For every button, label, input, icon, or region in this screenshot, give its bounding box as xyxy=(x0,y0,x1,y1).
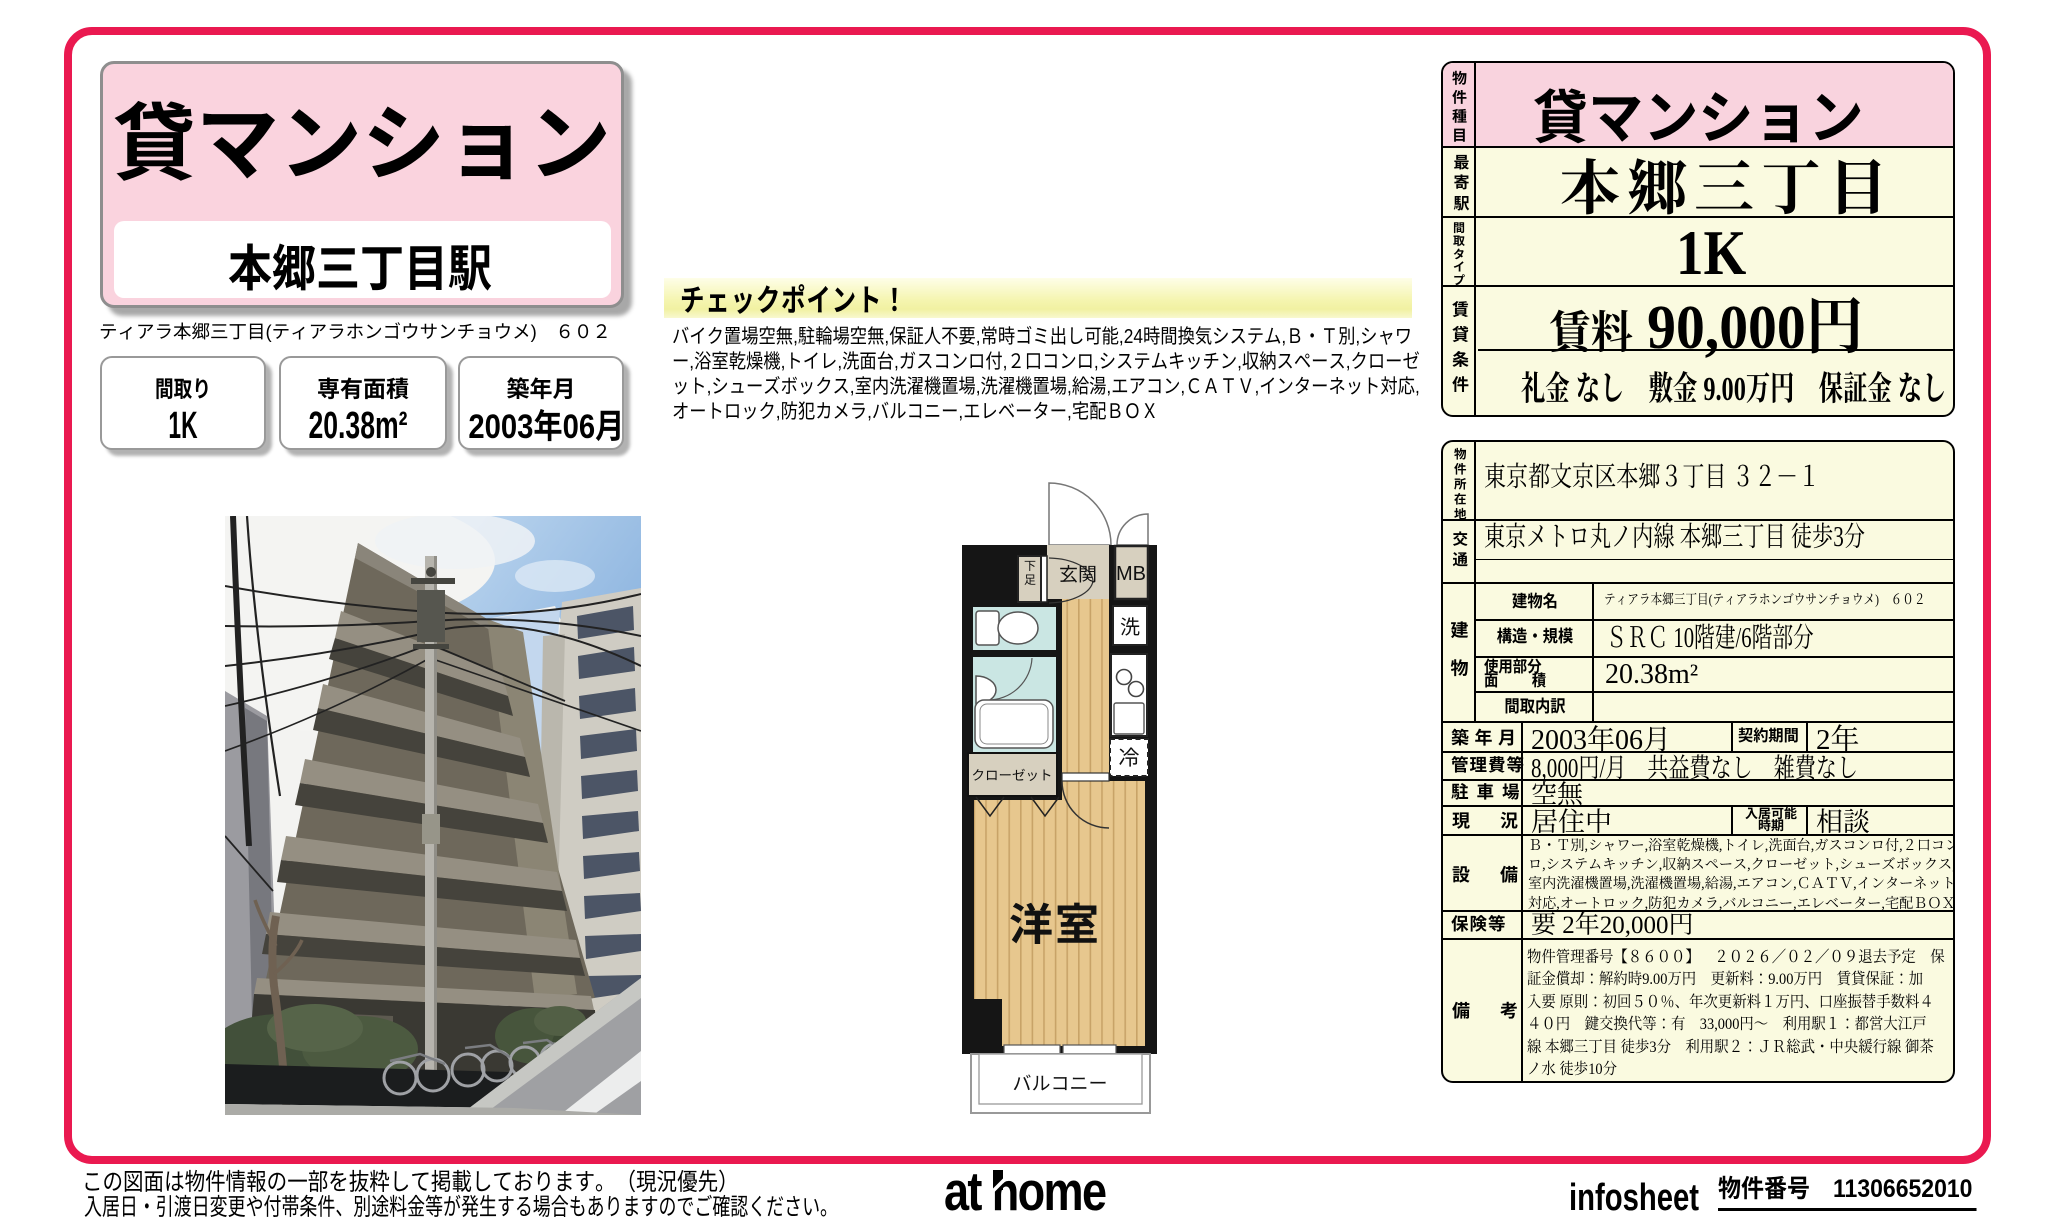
svg-text:玄関: 玄関 xyxy=(1059,565,1097,586)
svg-text:冷: 冷 xyxy=(1119,747,1140,770)
svg-text:足: 足 xyxy=(1024,573,1036,587)
svg-text:下: 下 xyxy=(1024,559,1036,573)
svg-text:洗: 洗 xyxy=(1120,617,1140,639)
svg-text:MB: MB xyxy=(1116,563,1146,585)
svg-text:クローゼット: クローゼット xyxy=(972,768,1053,783)
svg-text:洋室: 洋室 xyxy=(1009,901,1101,950)
svg-text:at home: at home xyxy=(944,1167,1106,1217)
svg-text:バルコニー: バルコニー xyxy=(1012,1074,1107,1095)
